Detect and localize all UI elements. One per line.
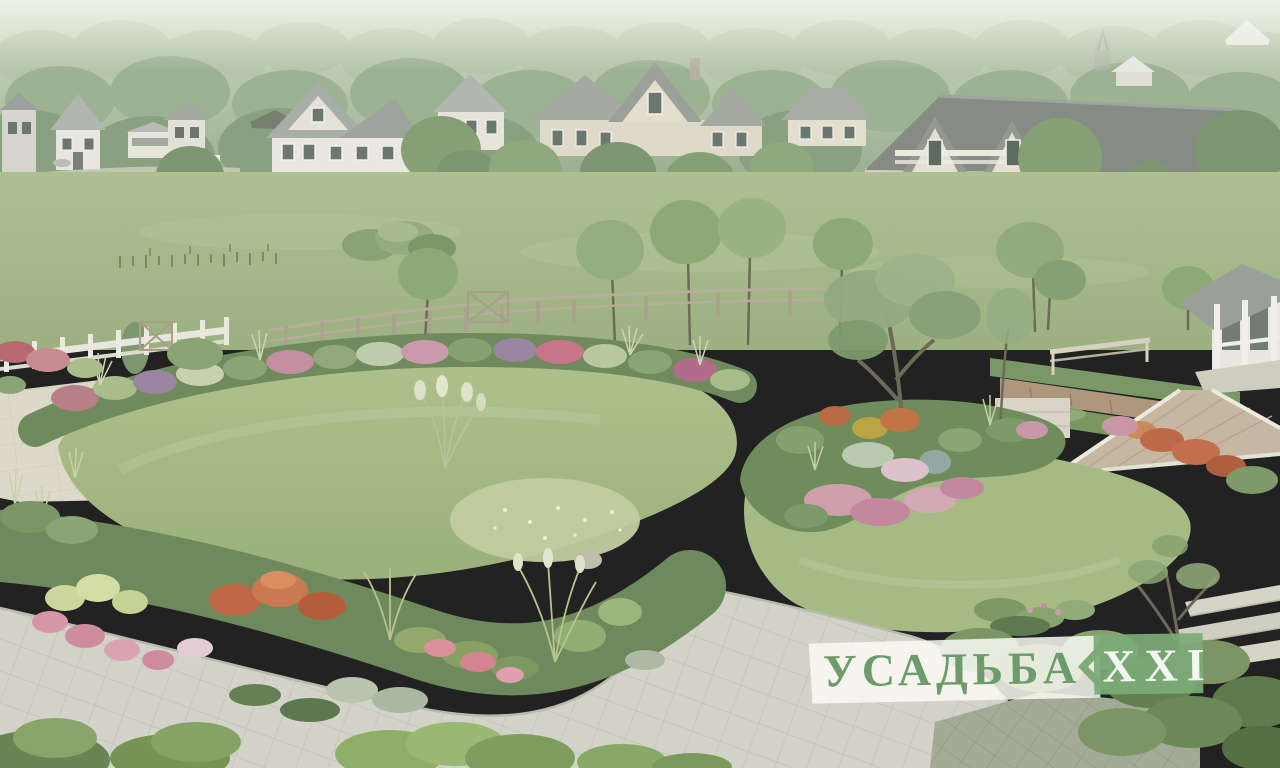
watermark-logo: УСАДЬБА XXI [809, 633, 1215, 704]
wildflower-patch [450, 478, 640, 562]
garden-landscape-render: УСАДЬБА XXI [0, 0, 1280, 768]
watermark-roman-numeral: XXI [1102, 639, 1214, 692]
landscape-illustration: УСАДЬБА XXI [0, 0, 1280, 768]
atmospheric-haze [0, 0, 1280, 70]
watermark-estate-text: УСАДЬБА [823, 642, 1082, 697]
